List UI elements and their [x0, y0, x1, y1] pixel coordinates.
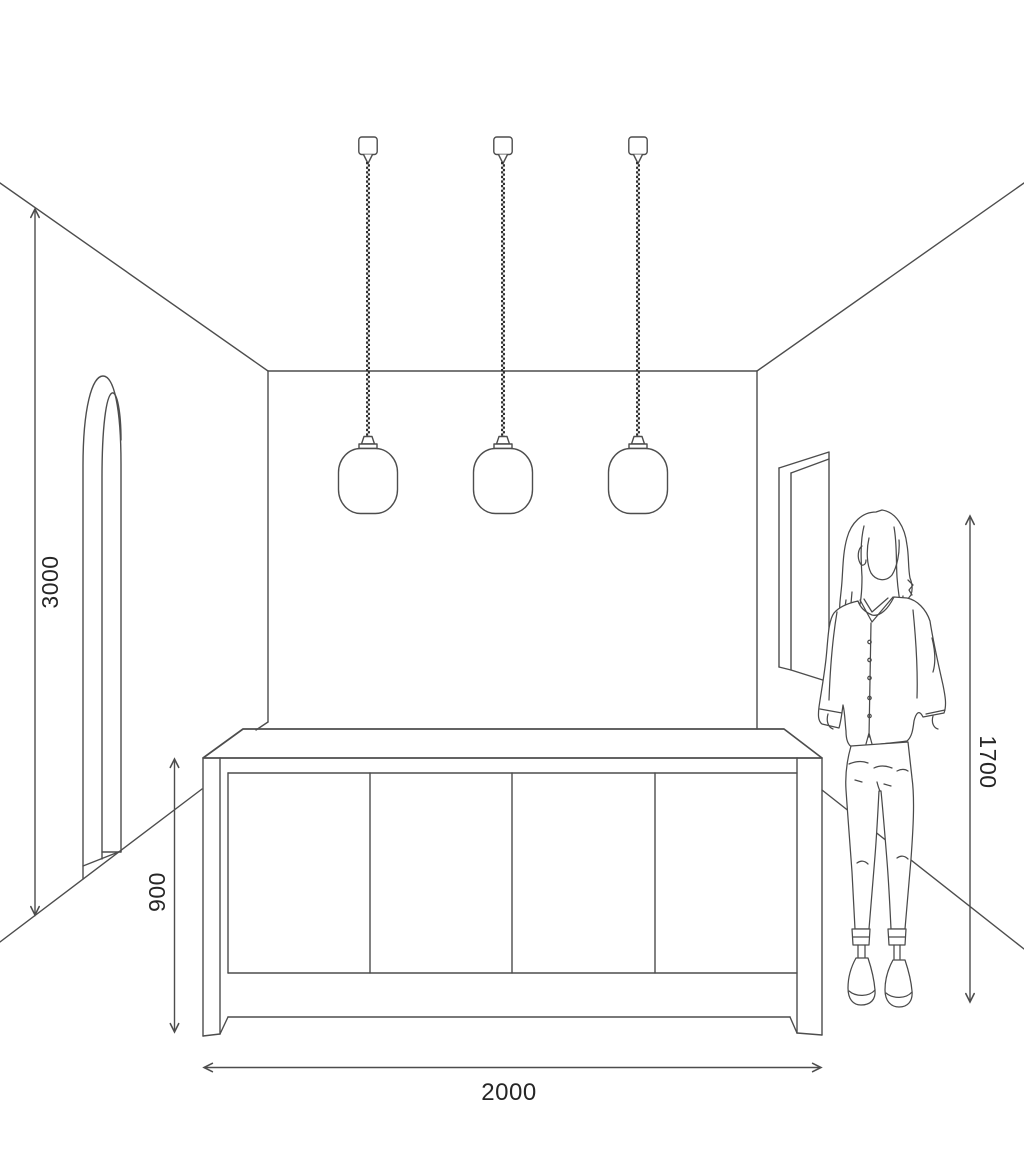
wall-frame [779, 452, 829, 682]
frame-bottom [779, 667, 829, 682]
island-kick-left [220, 1017, 228, 1034]
pendant-light-2 [474, 137, 533, 514]
frame-outer-top-right [779, 452, 829, 682]
diagram-svg: 3000 900 1700 2000 [0, 0, 1024, 1170]
kitchen-island [203, 729, 822, 1036]
island-countertop [203, 729, 822, 758]
dimension-island-width: 2000 [204, 1068, 821, 1107]
person-figure [818, 510, 945, 1007]
dimension-label-3000: 3000 [37, 555, 63, 608]
floor-edge-left [0, 789, 202, 942]
pendant-lights [339, 137, 668, 514]
pendant-light-1 [339, 137, 398, 514]
pendant-light-3 [609, 137, 668, 514]
person-blouse [818, 597, 945, 747]
dimension-island-height: 900 [144, 759, 174, 1032]
island-left-foot [203, 1034, 220, 1036]
dimension-label-2000: 2000 [481, 1079, 536, 1106]
island-kick-right [790, 1017, 797, 1033]
arched-doorway [83, 376, 121, 879]
dimension-room-height: 3000 [35, 209, 63, 915]
person-ankles [858, 945, 900, 959]
dimension-label-1700: 1700 [975, 735, 1001, 788]
frame-inner-top [791, 459, 829, 473]
person-shoe-right [885, 960, 912, 1007]
ceiling-edge-right [757, 183, 1024, 371]
person-shoe-left [848, 958, 875, 1005]
ceiling-edge-left [0, 183, 268, 371]
dimension-person-height: 1700 [970, 516, 1001, 1002]
dimension-label-900: 900 [144, 872, 170, 912]
scale-diagram: 3000 900 1700 2000 [0, 0, 1024, 1170]
arch-inner [102, 393, 121, 859]
island-right-foot [797, 1033, 822, 1035]
